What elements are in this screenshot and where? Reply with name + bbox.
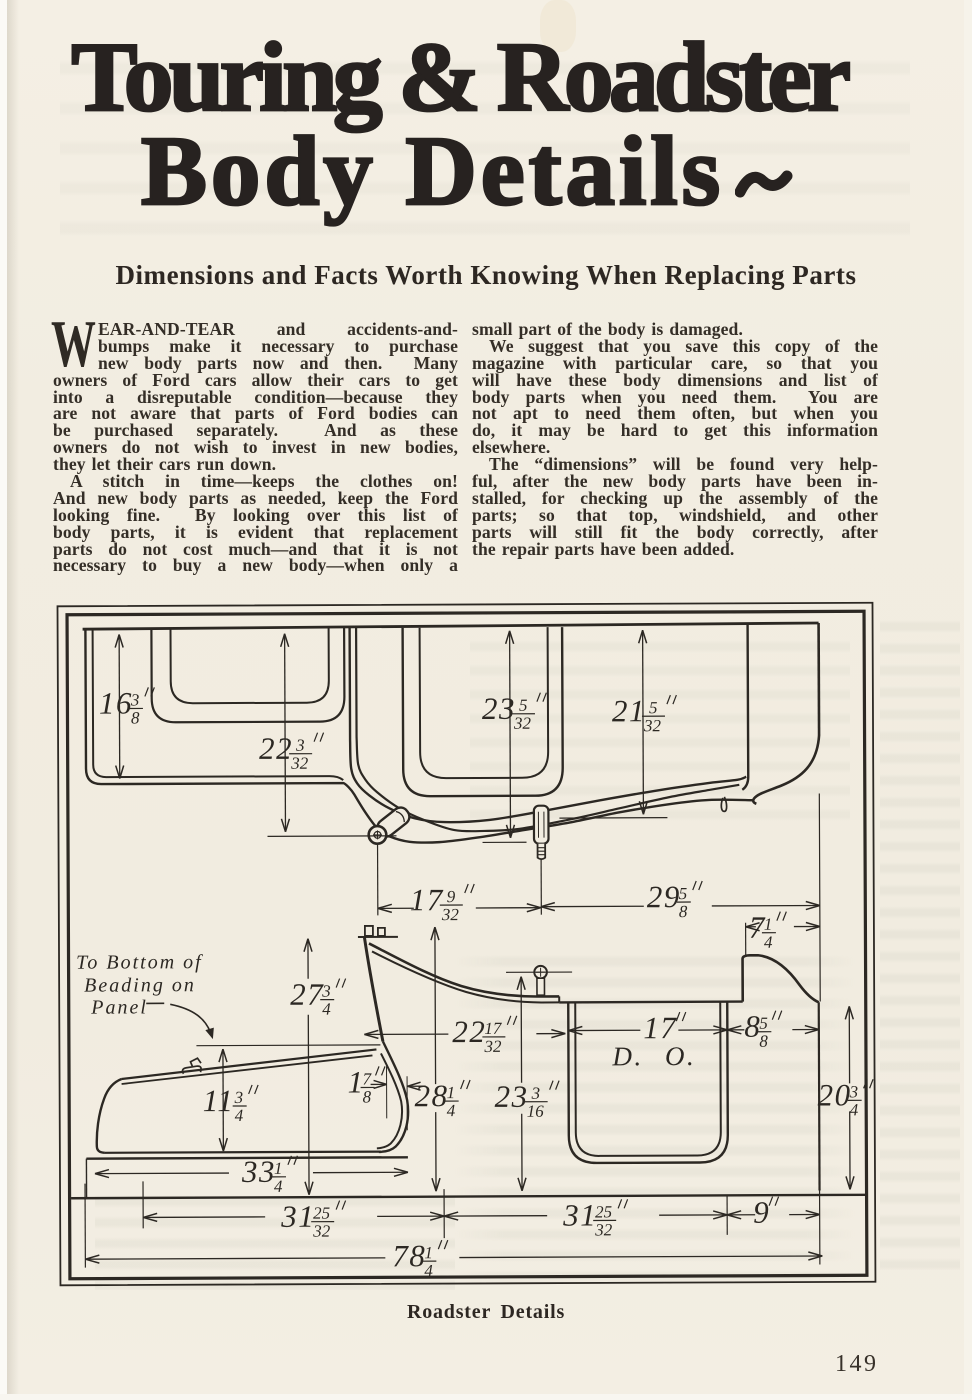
svg-text:5: 5: [759, 1014, 768, 1033]
svg-text:22: 22: [259, 731, 293, 766]
svg-text:20: 20: [818, 1077, 852, 1112]
svg-text:29: 29: [647, 879, 681, 914]
svg-text:3: 3: [321, 982, 331, 1001]
svg-text:22: 22: [452, 1014, 486, 1049]
svg-text:27: 27: [290, 977, 324, 1012]
svg-text:3: 3: [531, 1084, 541, 1103]
svg-text:5: 5: [519, 696, 528, 715]
svg-text:Panel: Panel: [90, 996, 148, 1018]
svg-text:8: 8: [679, 902, 688, 921]
svg-text:33: 33: [241, 1154, 276, 1189]
svg-text:16: 16: [527, 1102, 545, 1121]
svg-text:32: 32: [441, 905, 460, 924]
svg-text:17: 17: [484, 1019, 503, 1038]
svg-text:28: 28: [415, 1078, 449, 1113]
svg-text:To Bottom of: To Bottom of: [76, 951, 203, 974]
svg-text:78: 78: [392, 1238, 426, 1273]
svg-text:9: 9: [447, 887, 456, 906]
svg-text:31: 31: [562, 1197, 597, 1232]
svg-text:4: 4: [764, 933, 773, 952]
svg-text:1: 1: [764, 915, 773, 934]
svg-text:31: 31: [280, 1199, 315, 1234]
svg-text:D. O.: D. O.: [611, 1041, 696, 1071]
svg-text:16: 16: [99, 685, 133, 720]
svg-text:8: 8: [759, 1032, 768, 1051]
svg-text:3: 3: [849, 1082, 859, 1101]
svg-text:4: 4: [850, 1100, 859, 1119]
svg-text:3: 3: [295, 736, 305, 755]
svg-text:32: 32: [643, 716, 662, 735]
svg-text:8: 8: [131, 708, 140, 727]
svg-text:4: 4: [274, 1177, 283, 1196]
svg-text:7: 7: [363, 1069, 373, 1088]
svg-text:32: 32: [594, 1220, 613, 1239]
svg-text:3: 3: [234, 1088, 244, 1107]
svg-text:21: 21: [612, 693, 646, 728]
svg-text:4: 4: [447, 1101, 456, 1120]
svg-text:5: 5: [679, 884, 688, 903]
svg-text:4: 4: [235, 1106, 244, 1125]
svg-text:1: 1: [447, 1083, 456, 1102]
svg-text:11: 11: [203, 1083, 235, 1118]
svg-text:8: 8: [363, 1087, 372, 1106]
svg-text:25: 25: [595, 1202, 612, 1221]
svg-text:3: 3: [130, 690, 140, 709]
svg-text:17: 17: [643, 1010, 677, 1045]
svg-text:9: 9: [753, 1195, 770, 1230]
svg-text:5: 5: [649, 698, 658, 717]
svg-text:32: 32: [290, 754, 309, 773]
svg-text:Beading on: Beading on: [84, 974, 196, 996]
svg-text:32: 32: [513, 714, 532, 733]
svg-text:23: 23: [495, 1079, 529, 1114]
svg-text:4: 4: [322, 1000, 331, 1019]
svg-text:25: 25: [313, 1204, 330, 1223]
svg-text:1: 1: [274, 1159, 283, 1178]
svg-text:4: 4: [424, 1261, 433, 1280]
svg-text:32: 32: [483, 1037, 502, 1056]
svg-text:17: 17: [410, 882, 444, 917]
svg-text:23: 23: [482, 691, 516, 726]
svg-text:1: 1: [424, 1243, 433, 1262]
svg-text:32: 32: [312, 1222, 331, 1241]
